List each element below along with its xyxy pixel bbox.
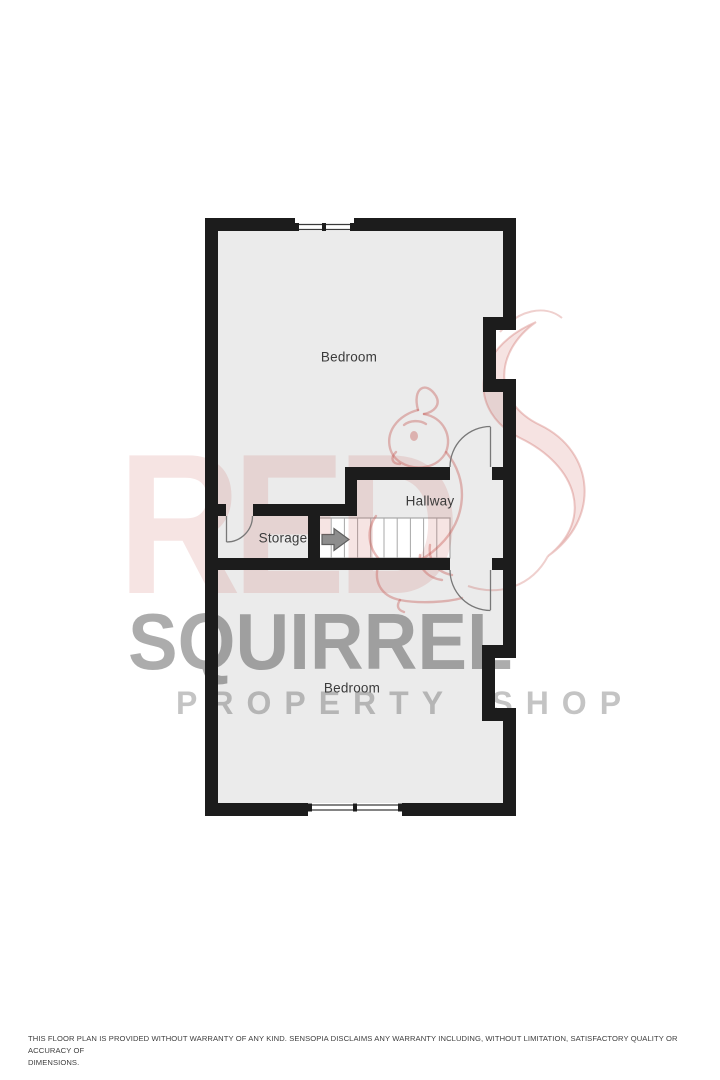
disclaimer-line-1: THIS FLOOR PLAN IS PROVIDED WITHOUT WARR… bbox=[28, 1033, 688, 1057]
wall-hallway-bottom-stub bbox=[492, 558, 503, 570]
room-label-bedroom-top: Bedroom bbox=[321, 350, 377, 365]
room-label-storage: Storage bbox=[259, 531, 308, 546]
notch2-jog-top bbox=[482, 645, 516, 658]
walls bbox=[205, 218, 516, 816]
wall-left bbox=[205, 218, 218, 816]
wall-right-middle bbox=[503, 392, 516, 645]
window-top bbox=[295, 218, 354, 231]
wall-storage-top bbox=[253, 504, 357, 516]
wall-top bbox=[205, 218, 516, 231]
door-bedroom-top bbox=[450, 427, 491, 468]
disclaimer-line-2: DIMENSIONS. bbox=[28, 1057, 688, 1069]
door-bedroom-bottom bbox=[450, 570, 491, 611]
wall-right-lower bbox=[503, 721, 516, 816]
door-storage bbox=[227, 516, 253, 542]
notch2-vertical bbox=[482, 657, 495, 709]
floorplan-page: RED SQUIRREL PROPERTY SHOP bbox=[0, 0, 720, 1080]
floorplan-walls-layer bbox=[0, 0, 720, 1080]
notch1-jog-bottom bbox=[483, 379, 516, 392]
wall-hallway-top-stub bbox=[492, 467, 503, 480]
room-label-bedroom-bottom: Bedroom bbox=[324, 681, 380, 696]
disclaimer-text: THIS FLOOR PLAN IS PROVIDED WITHOUT WARR… bbox=[28, 1033, 688, 1068]
wall-right-upper bbox=[503, 218, 516, 317]
notch1-vertical bbox=[483, 329, 496, 380]
window-bottom bbox=[308, 803, 402, 816]
notch1-jog-top bbox=[483, 317, 516, 330]
wall-hallway-bottom bbox=[205, 558, 450, 570]
wall-hallway-top bbox=[345, 467, 450, 480]
notch2-jog-bottom bbox=[482, 708, 516, 721]
wall-storage-stub bbox=[218, 504, 226, 516]
room-label-hallway: Hallway bbox=[406, 494, 455, 509]
